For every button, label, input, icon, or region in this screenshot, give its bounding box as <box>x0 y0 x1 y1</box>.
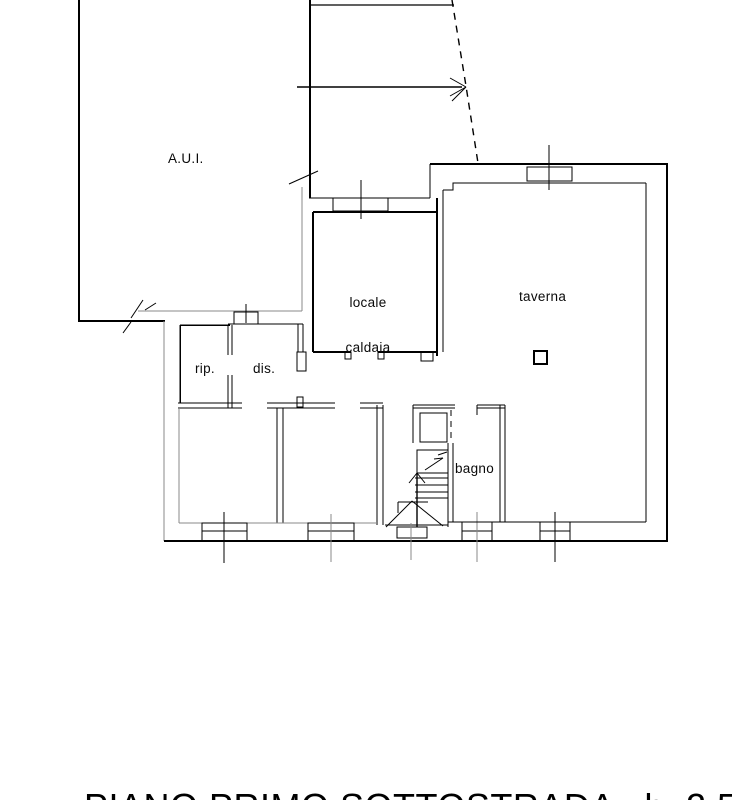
floor-plan-page: A.U.I. locale caldaia taverna rip. dis. … <box>0 0 732 800</box>
room-label-locale-caldaia-line1: locale <box>320 295 416 310</box>
room-label-locale-caldaia: locale caldaia <box>320 265 416 385</box>
staircase <box>385 405 455 560</box>
ramp-arrow <box>297 0 478 198</box>
room-label-rip: rip. <box>195 361 215 376</box>
break-marks <box>123 171 318 333</box>
taverna-walls <box>164 145 668 562</box>
room-label-locale-caldaia-line2: caldaia <box>320 340 416 355</box>
pillar <box>534 351 547 364</box>
room-label-aui: A.U.I. <box>168 151 204 166</box>
lower-rooms-walls <box>178 403 383 563</box>
room-label-bagno: bagno <box>455 461 494 476</box>
floor-title: PIANO PRIMO SOTTOSTRADA h 2.50 <box>84 786 732 800</box>
aui-room-walls <box>78 0 302 541</box>
rip-dis-walls <box>180 304 306 408</box>
room-label-dis: dis. <box>253 361 275 376</box>
floor-plan-drawing <box>0 0 732 800</box>
room-label-taverna: taverna <box>519 289 566 304</box>
